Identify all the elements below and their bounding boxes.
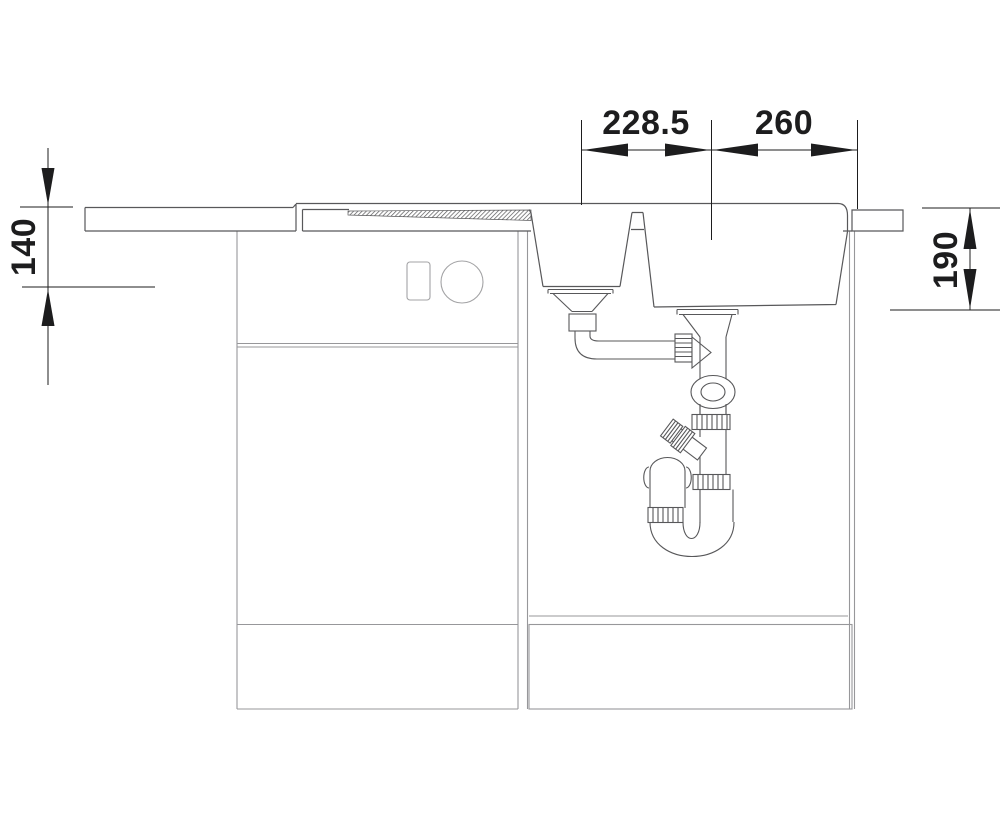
cabinet-switch-rect [407, 262, 430, 300]
installation-drawing-svg: 228.5 260 140 190 [0, 0, 1000, 819]
arrowhead [964, 209, 977, 249]
countertop-under-sink [296, 204, 852, 231]
strainer-small-bowl [548, 290, 675, 360]
dim-label-right: 190 [927, 231, 965, 289]
cabinet-knob-circle [441, 261, 483, 303]
arrowhead [811, 144, 856, 157]
pipe-cone-joint [692, 337, 711, 368]
cabinet-partition [518, 232, 528, 710]
waste-plumbing [548, 290, 738, 557]
bowl-divider [620, 213, 654, 308]
cabinet [237, 232, 855, 710]
trap-cleanout-dome [650, 458, 685, 509]
countertop-left-section [85, 204, 296, 231]
countertop-right-section [852, 210, 903, 231]
trap-nut-upper [692, 415, 730, 430]
pipe-coupling-nut [675, 334, 711, 368]
dim-label-left: 140 [5, 218, 43, 276]
sink-rim [296, 204, 848, 232]
drainboard-hatch [348, 210, 531, 221]
large-bowl [654, 232, 848, 308]
arrowhead [583, 144, 628, 157]
arrowhead [713, 144, 758, 157]
technical-drawing-page: 228.5 260 140 190 [0, 0, 1000, 819]
arrowhead [665, 144, 710, 157]
trap-nut-lower [648, 508, 683, 523]
drain-elbow [575, 336, 599, 359]
arrowhead [42, 289, 55, 326]
dim-label-top-right: 260 [755, 104, 813, 142]
plinth-drawer [529, 625, 852, 710]
small-bowl [529, 210, 620, 287]
arrowhead [964, 269, 977, 309]
trap-nut-middle [693, 475, 730, 490]
arrowhead [42, 168, 55, 205]
tailpipe-ring [691, 376, 735, 409]
sink [296, 204, 848, 308]
cabinet-drawer-line [237, 344, 518, 348]
drain-horizontal-pipe [597, 341, 675, 359]
dim-label-top-left: 228.5 [602, 104, 690, 142]
